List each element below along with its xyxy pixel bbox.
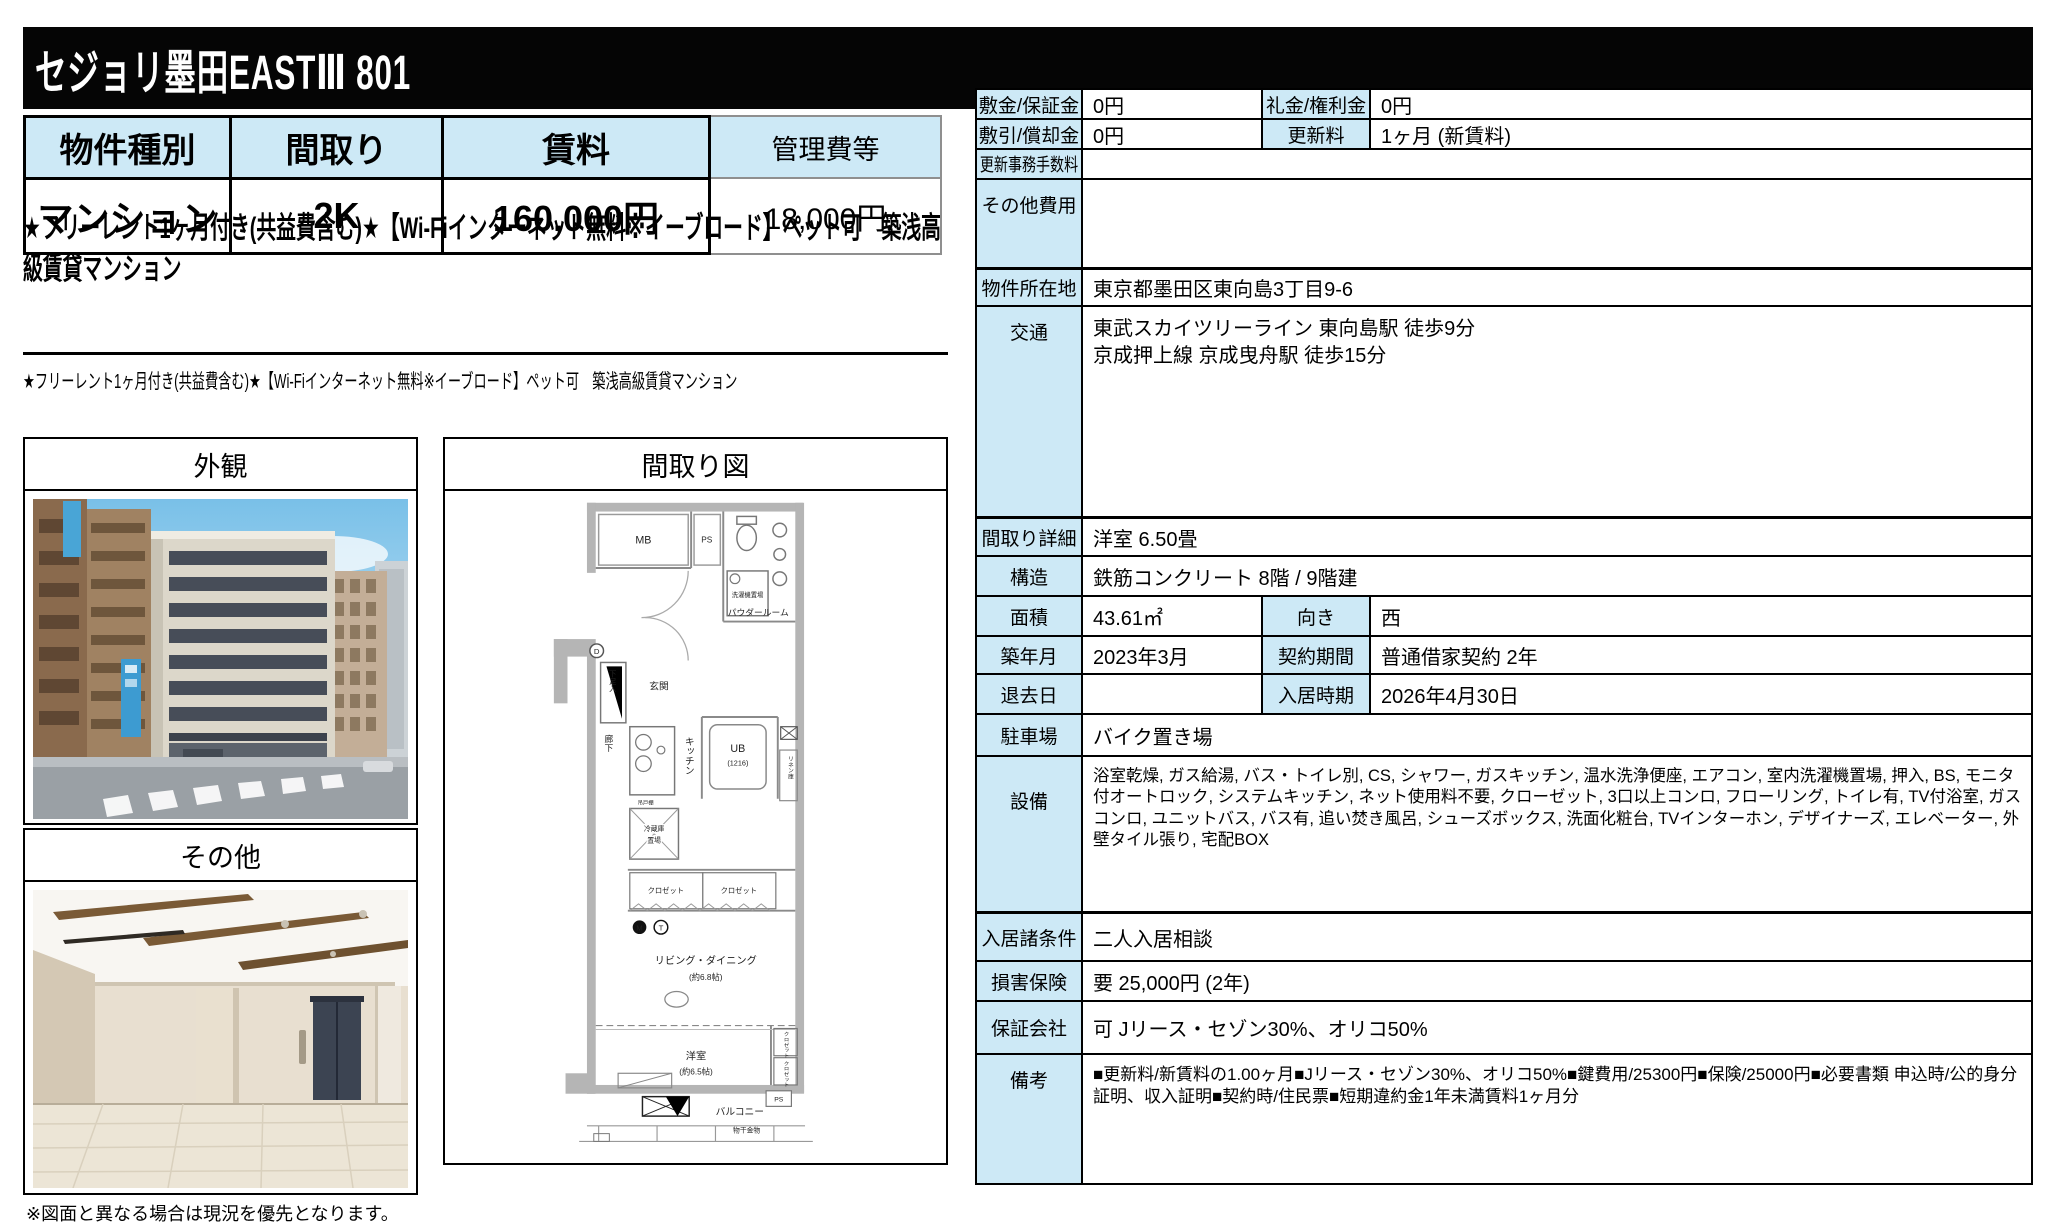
room-label-living-size: (約6.8帖) [688, 972, 722, 982]
room-label-closet-b: クロゼット [720, 886, 756, 895]
row-value: 1ヶ月 (新賃料) [1371, 120, 2031, 148]
row-value: 東京都墨田区東向島3丁目9-6 [1083, 270, 2031, 305]
table-row: 保証会社 可 Jリース・セゾン30%、オリコ50% [977, 1002, 2031, 1055]
room-label-ps-top: PS [701, 536, 713, 545]
row-label: 交通 [977, 307, 1083, 516]
photo-other-label: その他 [25, 830, 416, 882]
row-value [1083, 675, 1261, 713]
table-row: 入居諸条件 二人入居相談 [977, 914, 2031, 962]
table-row: 面積 43.61㎡ 向き 西 [977, 597, 2031, 637]
other-photo [33, 890, 408, 1188]
room-label-ps-bottom: PS [774, 1097, 784, 1104]
table-row: その他費用 [977, 180, 2031, 270]
room-label-powder: パウダールーム [727, 607, 788, 618]
exterior-photo [33, 499, 408, 819]
row-label: 備考 [977, 1055, 1083, 1183]
floorplan-drawing: MB PS 洗濯機置場 パウダールーム D 下足入 玄関 廊下 [540, 495, 852, 1157]
row-value: 東武スカイツリーライン 東向島駅 徒歩9分 京成押上線 京成曳舟駅 徒歩15分 [1083, 307, 2031, 516]
row-value: ■更新料/新賃料の1.00ヶ月■Jリース・セゾン30%、オリコ50%■鍵費用/2… [1083, 1055, 2031, 1183]
room-label-genkan: 玄関 [649, 680, 668, 693]
row-value: 洋室 6.50畳 [1083, 519, 2031, 555]
floorplan-header: 間取り図 [445, 439, 946, 491]
label-hanging-cupboard: 吊戸棚 [637, 799, 653, 807]
row-label: その他費用 [977, 180, 1083, 267]
table-row: 敷金/保証金 0円 礼金/権利金 0円 [977, 90, 2031, 120]
room-label-bedroom-size: (約6.5帖) [679, 1066, 713, 1076]
table-row: 設備 浴室乾燥, ガス給湯, バス・トイレ別, CS, シャワー, ガスキッチン… [977, 757, 2031, 914]
row-label: 礼金/権利金 [1261, 90, 1371, 118]
row-value: 浴室乾燥, ガス給湯, バス・トイレ別, CS, シャワー, ガスキッチン, 温… [1083, 757, 2031, 911]
summary-header-type: 物件種別 [26, 118, 229, 180]
room-label-shoe: 下足入 [608, 670, 617, 692]
page-title: セジョリ墨田EASTⅢ 801 [23, 33, 411, 103]
table-row: 構造 鉄筋コンクリート 8階 / 9階建 [977, 557, 2031, 597]
row-label: 面積 [977, 597, 1083, 635]
row-value: 0円 [1083, 90, 1261, 118]
row-label: 間取り詳細 [977, 519, 1083, 555]
room-label-hall: 廊下 [603, 733, 613, 753]
room-label-washer: 洗濯機置場 [731, 590, 763, 599]
table-row: 間取り詳細 洋室 6.50畳 [977, 519, 2031, 557]
row-value: 可 Jリース・セゾン30%、オリコ50% [1083, 1002, 2031, 1053]
detail-table: 敷金/保証金 0円 礼金/権利金 0円 敷引/償却金 0円 更新料 1ヶ月 (新… [975, 88, 2033, 1185]
label-laundry-bar: 物干金物 [733, 1126, 760, 1135]
room-label-bedroom: 洋室 [685, 1050, 705, 1063]
headline-text: ★フリーレント1ヶ月付き(共益費含む)★【Wi-Fiインターネット無料※イーブロ… [23, 208, 954, 291]
row-label: 敷引/償却金 [977, 120, 1083, 148]
mark-d: D [593, 647, 599, 656]
row-value: 二人入居相談 [1083, 914, 2031, 960]
room-label-closet-c: クロゼット [782, 1031, 789, 1058]
subheadline-text: ★フリーレント1ヶ月付き(共益費含む)★【Wi-Fiインターネット無料※イーブロ… [23, 365, 737, 394]
row-value: 要 25,000円 (2年) [1083, 962, 2031, 1000]
mark-m: M [636, 924, 642, 933]
row-value: 0円 [1371, 90, 2031, 118]
photo-exterior-label: 外観 [25, 439, 416, 491]
row-label: 入居時期 [1261, 675, 1371, 713]
row-value: 普通借家契約 2年 [1371, 637, 2031, 673]
row-value: 2023年3月 [1083, 637, 1261, 673]
row-label: 更新事務手数料 [980, 151, 1078, 177]
row-value: バイク置き場 [1083, 715, 2031, 755]
row-label: 物件所在地 [977, 270, 1083, 305]
row-label: 保証会社 [977, 1002, 1083, 1053]
row-label: 損害保険 [977, 962, 1083, 1000]
row-label: 入居諸条件 [977, 914, 1083, 960]
photo-box-exterior: 外観 [23, 437, 418, 825]
row-label: 更新料 [1261, 120, 1371, 148]
row-label: 駐車場 [977, 715, 1083, 755]
room-label-living: リビング・ダイニング [654, 954, 756, 967]
row-value: 0円 [1083, 120, 1261, 148]
divider-rule [23, 352, 948, 355]
table-row: 敷引/償却金 0円 更新料 1ヶ月 (新賃料) [977, 120, 2031, 150]
row-label: 築年月 [977, 637, 1083, 673]
room-label-kitchen: キッチン [682, 736, 693, 775]
property-flyer-page: セジョリ墨田EASTⅢ 801 物件種別 マンション 間取り 2K 賃料 160… [0, 0, 2056, 1228]
room-label-fridge2: 置場 [647, 836, 661, 845]
mark-t: T [658, 924, 663, 933]
room-label-closet-a: クロゼット [647, 886, 683, 895]
row-label: 退去日 [977, 675, 1083, 713]
table-row: 備考 ■更新料/新賃料の1.00ヶ月■Jリース・セゾン30%、オリコ50%■鍵費… [977, 1055, 2031, 1183]
row-label: 契約期間 [1261, 637, 1371, 673]
table-row: 駐車場 バイク置き場 [977, 715, 2031, 757]
footer-note: ※図面と異なる場合は現況を優先となります。 [26, 1200, 399, 1226]
photo-box-other: その他 [23, 828, 418, 1195]
room-label-fridge1: 冷蔵庫 [643, 824, 664, 833]
summary-header-rent: 賃料 [444, 118, 708, 180]
row-label: 構造 [977, 557, 1083, 595]
row-value: 西 [1371, 597, 2031, 635]
row-value: 鉄筋コンクリート 8階 / 9階建 [1083, 557, 2031, 595]
room-label-ub: UB [730, 743, 745, 755]
table-row: 交通 東武スカイツリーライン 東向島駅 徒歩9分 京成押上線 京成曳舟駅 徒歩1… [977, 307, 2031, 519]
room-label-linen: リネン庫 [786, 756, 793, 781]
floorplan-box: 間取り図 [443, 437, 948, 1165]
row-label: 設備 [977, 757, 1083, 911]
row-label: 敷金/保証金 [977, 90, 1083, 118]
table-row: 更新事務手数料 [977, 150, 2031, 180]
table-row: 退去日 入居時期 2026年4月30日 [977, 675, 2031, 715]
row-value: 43.61㎡ [1083, 597, 1261, 635]
room-label-closet-d: クロゼット [782, 1060, 789, 1087]
row-value: 2026年4月30日 [1371, 675, 2031, 713]
summary-header-layout: 間取り [232, 118, 441, 180]
summary-header-fees: 管理費等 [711, 117, 940, 179]
room-label-ub-size: (1216) [727, 759, 748, 768]
room-label-mb: MB [635, 535, 651, 547]
table-row: 築年月 2023年3月 契約期間 普通借家契約 2年 [977, 637, 2031, 675]
table-row: 物件所在地 東京都墨田区東向島3丁目9-6 [977, 270, 2031, 307]
table-row: 損害保険 要 25,000円 (2年) [977, 962, 2031, 1002]
room-label-balcony: バルコニー [715, 1106, 763, 1118]
row-value [1083, 180, 2031, 267]
row-value [1083, 150, 2031, 178]
row-label: 向き [1261, 597, 1371, 635]
